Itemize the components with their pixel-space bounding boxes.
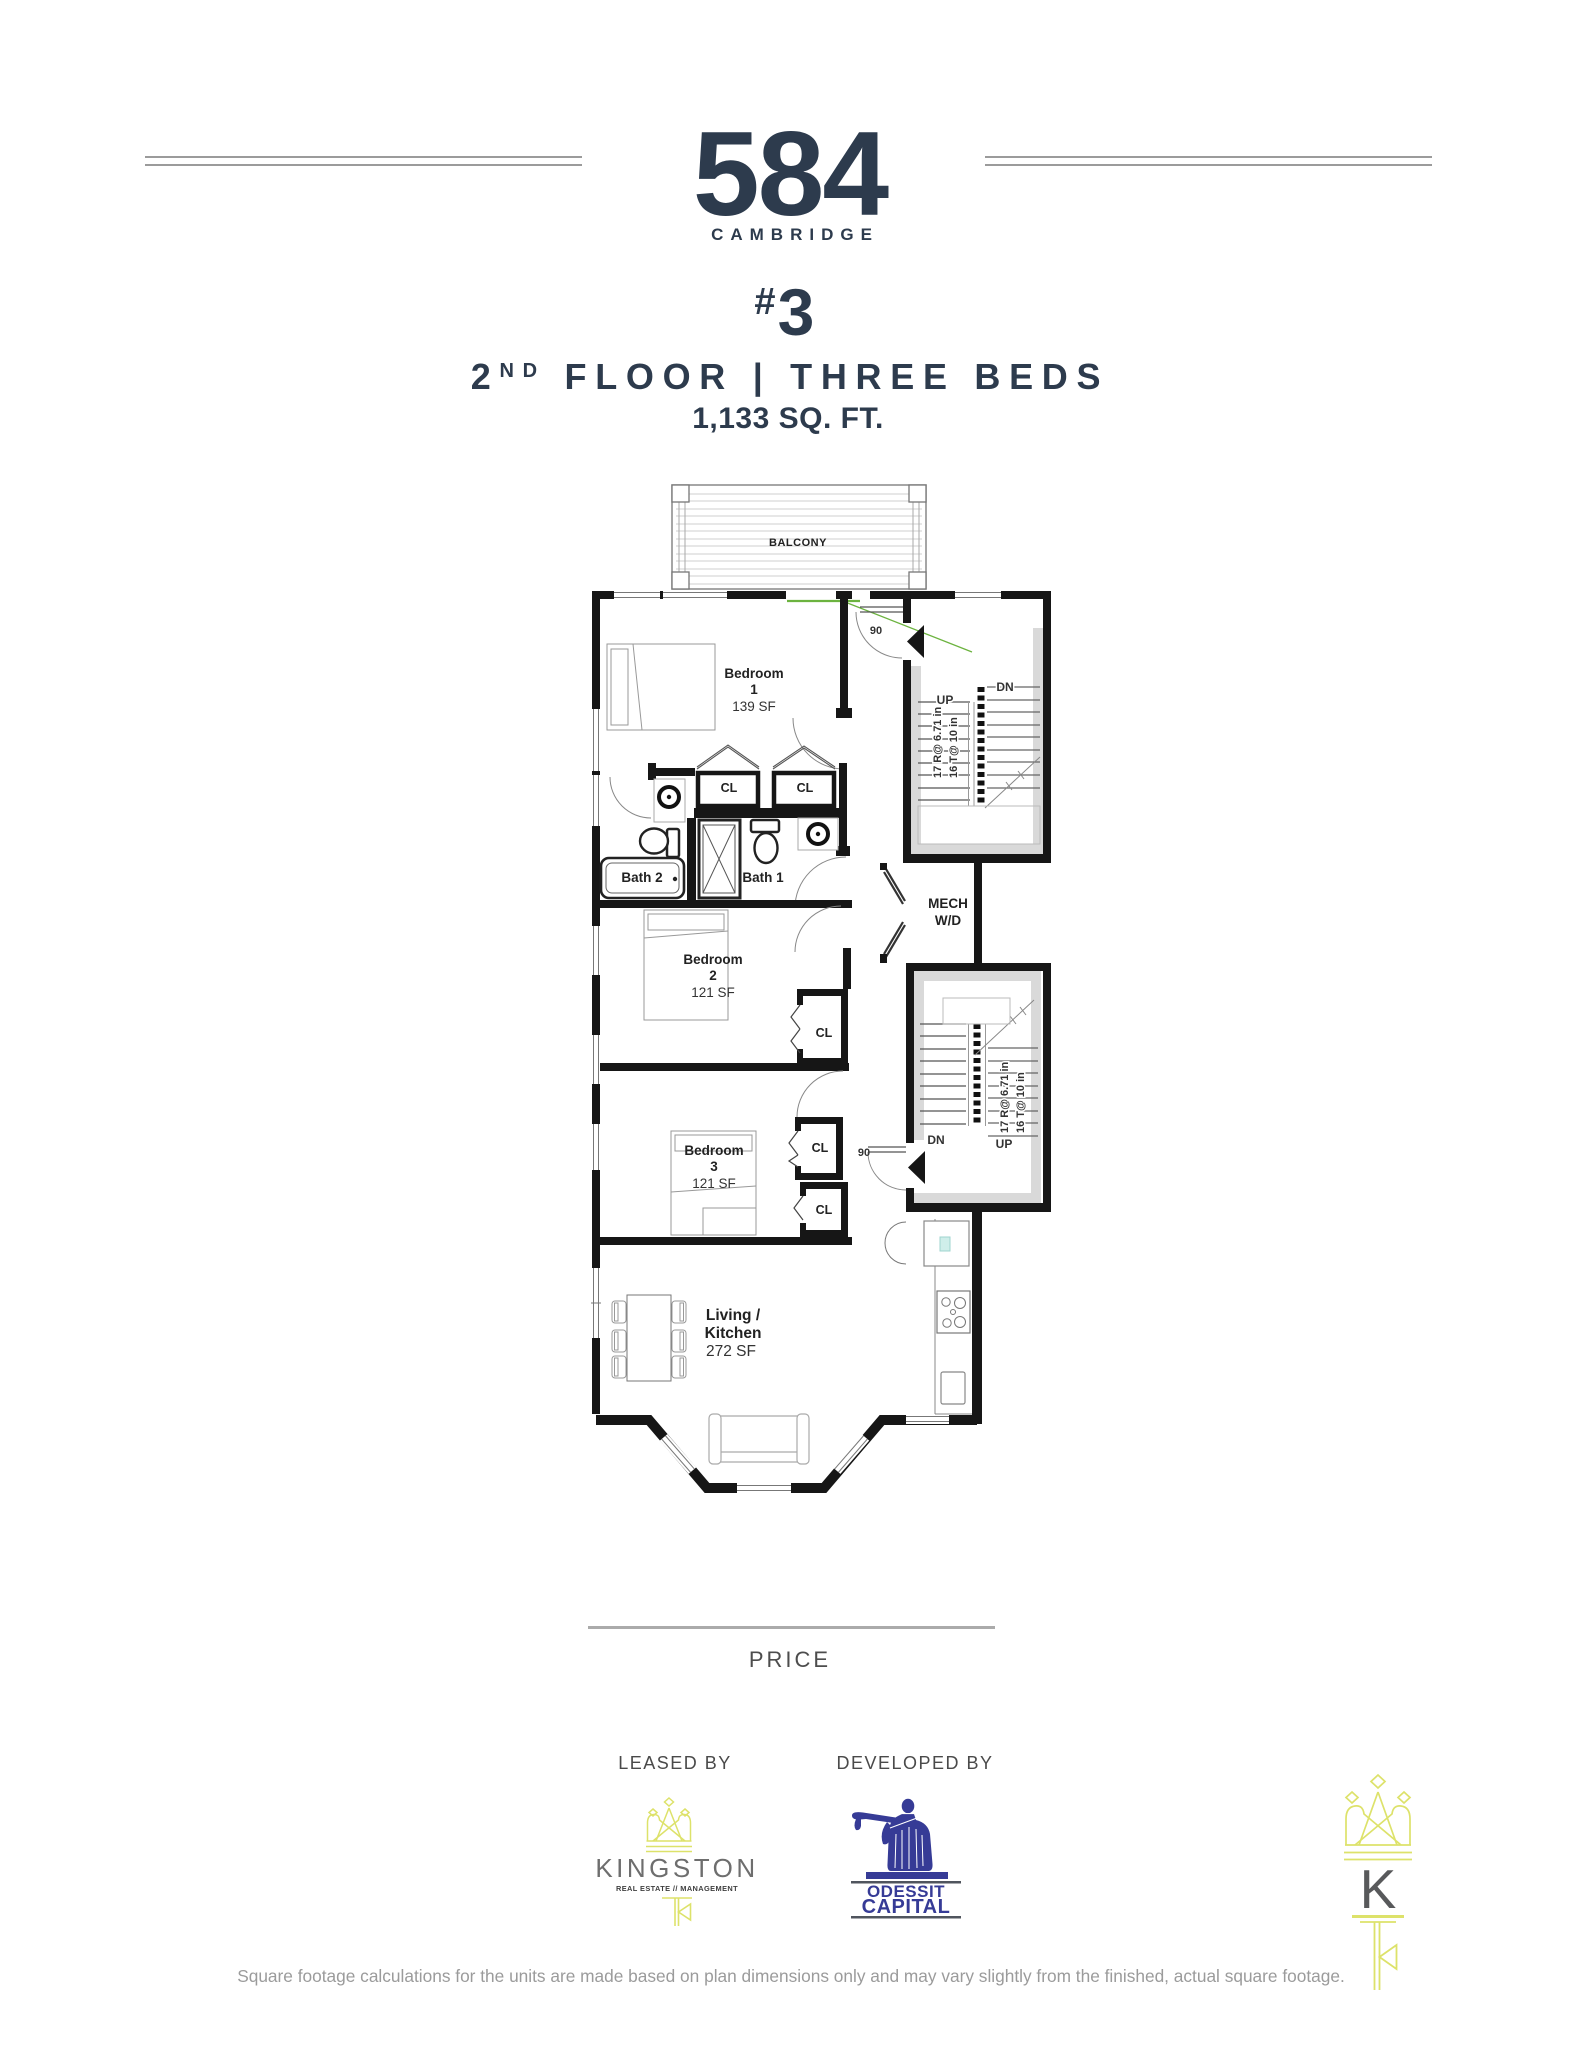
svg-text:CAMBRIDGE: CAMBRIDGE bbox=[711, 225, 879, 244]
svg-text:1,133 SQ. FT.: 1,133 SQ. FT. bbox=[692, 402, 884, 435]
svg-text:UP: UP bbox=[937, 693, 954, 707]
svg-text:17 R@ 6.71 in: 17 R@ 6.71 in bbox=[932, 706, 944, 778]
svg-text:272 SF: 272 SF bbox=[706, 1343, 756, 1360]
svg-text:121 SF: 121 SF bbox=[691, 985, 735, 1000]
svg-text:MECH: MECH bbox=[928, 896, 968, 911]
svg-text:16 T@ 10 in: 16 T@ 10 in bbox=[1015, 1072, 1027, 1133]
svg-text:CAPITAL: CAPITAL bbox=[862, 1896, 951, 1918]
svg-text:REAL ESTATE // MANAGEMENT: REAL ESTATE // MANAGEMENT bbox=[616, 1884, 738, 1893]
svg-text:DN: DN bbox=[996, 680, 1013, 694]
svg-text:CL: CL bbox=[797, 781, 814, 795]
svg-text:Bedroom: Bedroom bbox=[683, 952, 742, 967]
svg-text:Bath 2: Bath 2 bbox=[621, 870, 662, 885]
svg-text:2ND FLOOR | THREE BEDS: 2ND FLOOR | THREE BEDS bbox=[471, 356, 1109, 398]
svg-text:BALCONY: BALCONY bbox=[769, 537, 827, 549]
svg-text:CL: CL bbox=[721, 781, 738, 795]
svg-text:90: 90 bbox=[858, 1147, 870, 1159]
svg-text:584: 584 bbox=[693, 107, 889, 241]
svg-text:UP: UP bbox=[996, 1137, 1013, 1151]
svg-text:Bedroom: Bedroom bbox=[684, 1143, 743, 1158]
svg-text:121 SF: 121 SF bbox=[692, 1176, 736, 1191]
svg-text:CL: CL bbox=[816, 1203, 833, 1217]
svg-text:W/D: W/D bbox=[935, 913, 961, 928]
svg-text:DEVELOPED BY: DEVELOPED BY bbox=[836, 1753, 993, 1773]
svg-text:#: # bbox=[754, 281, 775, 323]
svg-text:DN: DN bbox=[927, 1133, 944, 1147]
svg-text:CL: CL bbox=[812, 1141, 829, 1155]
svg-text:LEASED BY: LEASED BY bbox=[618, 1753, 732, 1773]
svg-text:1: 1 bbox=[750, 682, 758, 697]
svg-text:Bath 1: Bath 1 bbox=[742, 870, 784, 885]
svg-text:16 T@ 10 in: 16 T@ 10 in bbox=[948, 717, 960, 778]
svg-text:2: 2 bbox=[709, 968, 717, 983]
svg-text:17 R@ 6.71 in: 17 R@ 6.71 in bbox=[999, 1061, 1011, 1133]
svg-text:139 SF: 139 SF bbox=[732, 699, 776, 714]
svg-text:Square footage calculations fo: Square footage calculations for the unit… bbox=[237, 1966, 1345, 1986]
svg-text:90: 90 bbox=[870, 625, 882, 637]
svg-text:KINGSTON: KINGSTON bbox=[595, 1853, 758, 1883]
svg-text:3: 3 bbox=[778, 275, 815, 349]
svg-text:PRICE: PRICE bbox=[749, 1647, 831, 1672]
svg-text:CL: CL bbox=[816, 1026, 833, 1040]
svg-text:Bedroom: Bedroom bbox=[724, 666, 783, 681]
svg-text:Living /: Living / bbox=[706, 1307, 761, 1324]
svg-text:Kitchen: Kitchen bbox=[705, 1325, 762, 1342]
svg-text:3: 3 bbox=[710, 1159, 718, 1174]
svg-text:K: K bbox=[1360, 1858, 1397, 1920]
